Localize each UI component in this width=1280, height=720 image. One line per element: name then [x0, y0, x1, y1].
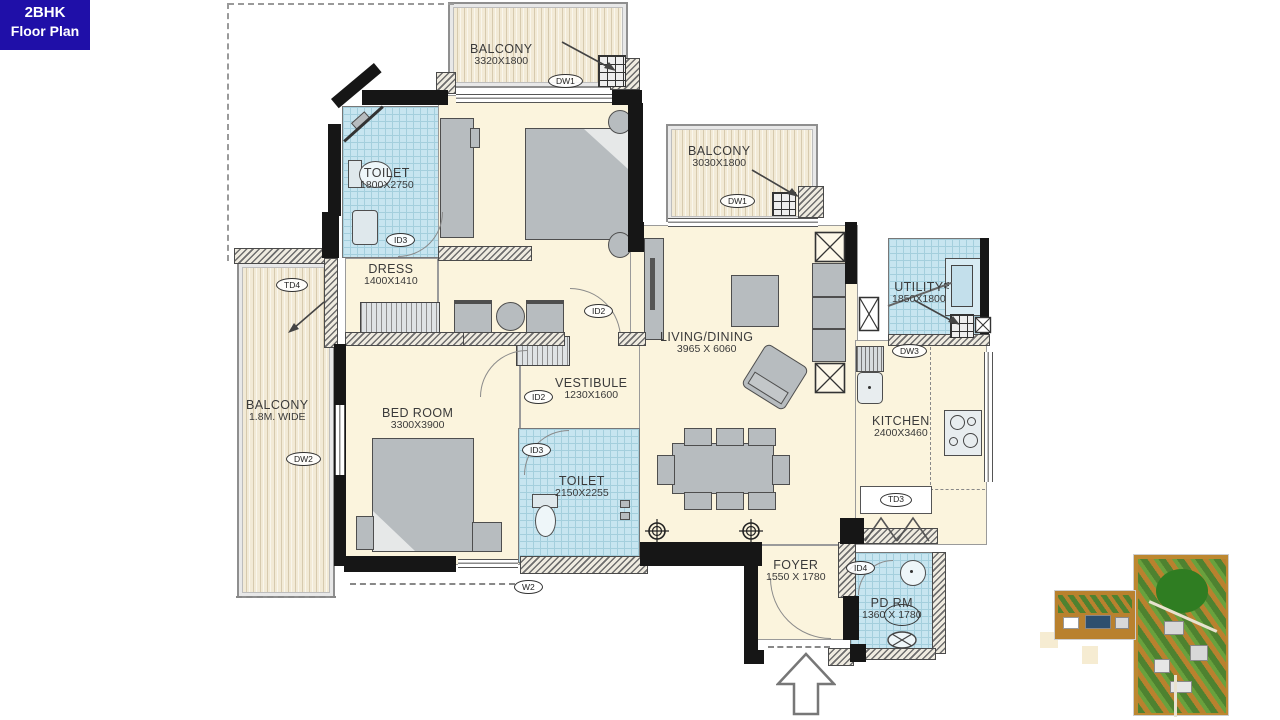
kitchen-door-panel: TD3 — [860, 486, 932, 514]
bed — [372, 438, 474, 552]
site-map — [1048, 552, 1232, 720]
sink-drain — [868, 386, 871, 389]
hatch-wall — [932, 552, 946, 654]
basin-drain — [910, 570, 913, 573]
wall — [362, 90, 448, 105]
arrow-icon — [560, 40, 620, 76]
burner — [967, 417, 976, 426]
window — [458, 559, 518, 568]
site-building — [1115, 617, 1129, 629]
window — [668, 218, 818, 227]
dress-wardrobe — [360, 302, 440, 334]
wall — [850, 644, 866, 662]
dining-chair — [716, 492, 744, 510]
wall — [328, 124, 341, 216]
room-label-pd-rm: PD RM 1360 X 1780 — [862, 596, 922, 622]
site-pool — [1085, 615, 1111, 629]
boundary-dashed-top — [228, 3, 454, 5]
site-building — [1190, 645, 1208, 661]
dining-chair — [684, 492, 712, 510]
room-label-living: LIVING/DINING 3965 X 6060 — [660, 330, 753, 356]
hatch-wall — [324, 258, 338, 348]
room-label-foyer: FOYER 1550 X 1780 — [766, 558, 826, 584]
wall — [845, 222, 857, 284]
floor-plan-page: 2BHK Floor Plan — [0, 0, 1280, 720]
sofa — [812, 263, 846, 362]
arrow-icon — [750, 168, 802, 202]
burner — [950, 415, 965, 430]
room-label-vestibule: VESTIBULE 1230X1600 — [555, 376, 627, 402]
wall — [344, 556, 456, 572]
wall — [322, 212, 339, 258]
site-greenery — [1058, 595, 1132, 613]
bed-fold — [373, 511, 415, 551]
wc-bowl — [535, 505, 556, 537]
window — [456, 94, 612, 103]
arrow-icon — [286, 300, 326, 336]
shower-mixer — [620, 512, 630, 520]
room-label-toilet-top: TOILET 1800X2750 — [360, 166, 414, 192]
folding-door-icon — [862, 514, 932, 544]
entrance-arrow-icon — [776, 652, 836, 716]
bed — [525, 128, 629, 240]
dining-chair — [748, 492, 776, 510]
dining-table — [672, 443, 774, 494]
dining-chair — [716, 428, 744, 446]
balcony-dashed-bottom — [236, 596, 336, 598]
wc-oval-icon — [886, 630, 918, 650]
plan-subtitle: Floor Plan — [0, 22, 90, 40]
wall — [744, 556, 758, 658]
dining-chair — [772, 455, 790, 485]
bedroom-dashed-bottom — [350, 583, 515, 585]
hatch-wall — [618, 332, 646, 346]
round-washbasin — [900, 560, 926, 586]
crosshair-icon — [738, 518, 764, 544]
door-tag: TD3 — [880, 493, 912, 507]
kitchen-sink — [857, 372, 883, 404]
sink-drainboard — [856, 346, 884, 372]
window — [335, 405, 345, 475]
xbox-icon — [858, 296, 880, 332]
room-label-balcony-right: BALCONY 3030X1800 — [688, 144, 751, 170]
room-label-dress: DRESS 1400X1410 — [364, 262, 418, 288]
dining-chair — [657, 455, 675, 485]
hatch-wall — [520, 556, 648, 574]
tag-w2: W2 — [514, 580, 543, 594]
side-table — [356, 516, 374, 550]
shower-mixer — [620, 500, 630, 508]
dining-chair — [684, 428, 712, 446]
site-building — [1063, 617, 1079, 629]
window — [984, 352, 993, 482]
room-label-toilet2: TOILET 2150X2255 — [555, 474, 609, 500]
room-label-kitchen: KITCHEN 2400X3460 — [872, 414, 930, 440]
xbox-icon — [814, 362, 846, 394]
room-label-bedroom: BED ROOM 3300X3900 — [382, 406, 453, 432]
wall — [628, 103, 643, 231]
round-table — [496, 302, 525, 331]
burner — [949, 437, 958, 446]
entrance-dashed — [768, 646, 830, 648]
site-road — [1174, 675, 1177, 717]
room-label-balcony-top: BALCONY 3320X1800 — [470, 42, 533, 68]
room-label-balcony-left: BALCONY 1.8M. WIDE — [246, 398, 309, 424]
arrow-icon — [912, 298, 964, 330]
hatch-wall — [463, 332, 565, 346]
sofa-cushion-line — [813, 328, 845, 330]
wall — [843, 596, 859, 640]
plan-title: 2BHK — [0, 4, 90, 22]
wall — [744, 650, 764, 664]
xbox-icon — [814, 231, 846, 263]
site-building — [1154, 659, 1170, 673]
burner — [963, 433, 978, 448]
washbasin — [352, 210, 378, 245]
site-building — [1164, 621, 1184, 635]
site-map-main — [1133, 554, 1229, 716]
bed-fold — [584, 129, 628, 169]
tv — [650, 258, 655, 310]
sofa-cushion-line — [813, 296, 845, 298]
crosshair-icon — [644, 518, 670, 544]
hob — [944, 410, 982, 456]
wardrobe — [440, 118, 474, 238]
wall — [840, 518, 864, 544]
site-map-wing — [1054, 590, 1136, 640]
xbox-icon — [974, 316, 992, 334]
wardrobe-handle — [470, 128, 480, 148]
hatch-wall — [345, 332, 465, 346]
boundary-dashed-left — [227, 3, 229, 261]
dining-chair — [748, 428, 776, 446]
hatch-wall — [438, 246, 532, 261]
side-table — [472, 522, 502, 552]
wall — [628, 222, 644, 252]
center-table — [731, 275, 779, 327]
plan-title-badge: 2BHK Floor Plan — [0, 0, 90, 50]
